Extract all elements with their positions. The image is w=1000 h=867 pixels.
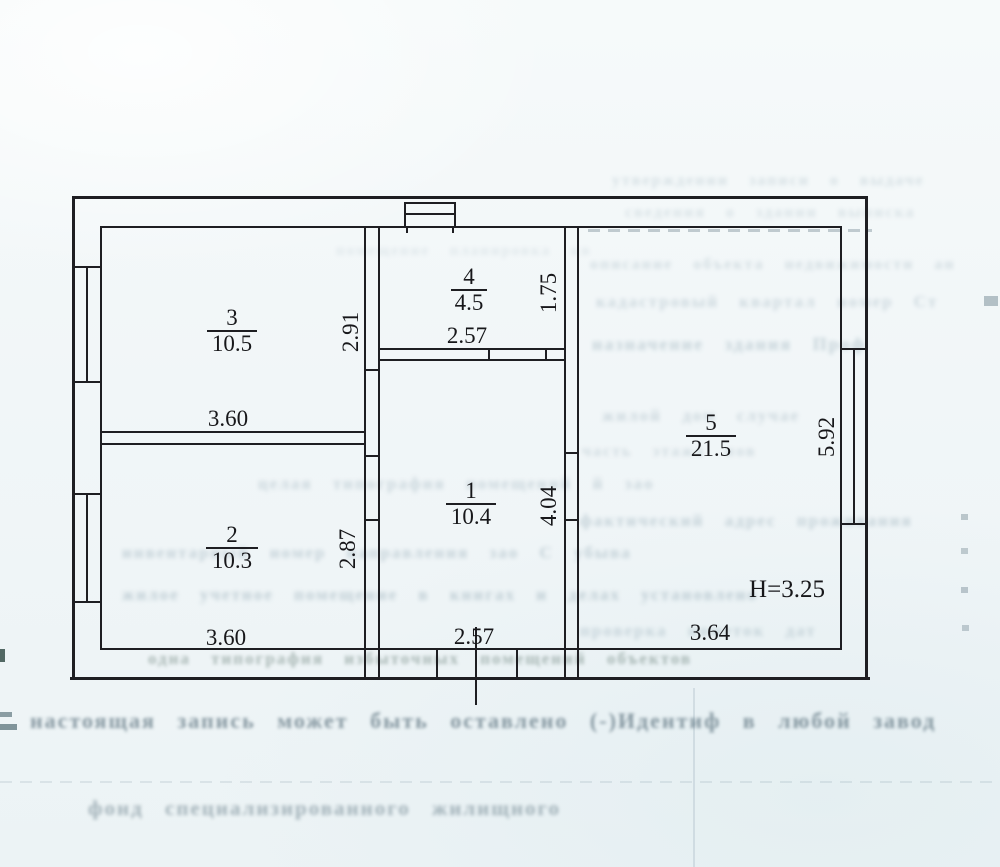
dimension-label-vertical: 1.75: [536, 273, 562, 313]
dimension-label-vertical: 2.87: [335, 529, 361, 569]
dimension-label: 3.60: [208, 406, 248, 432]
dimension-label: 2.57: [454, 624, 494, 650]
dimension-label: 2.57: [447, 323, 487, 349]
dimension-label: H=3.25: [749, 576, 825, 604]
dimension-label-vertical: 4.04: [536, 486, 562, 526]
dimension-labels-layer: 3.602.573.602.573.64H=3.252.911.752.874.…: [0, 0, 1000, 867]
dimension-label: 3.64: [690, 620, 730, 646]
dimension-label: 3.60: [206, 625, 246, 651]
dimension-label-vertical: 5.92: [814, 417, 840, 457]
scanned-floor-plan-page: утверждении записи о выдачесведения о зд…: [0, 0, 1000, 867]
dimension-label-vertical: 2.91: [338, 312, 364, 352]
